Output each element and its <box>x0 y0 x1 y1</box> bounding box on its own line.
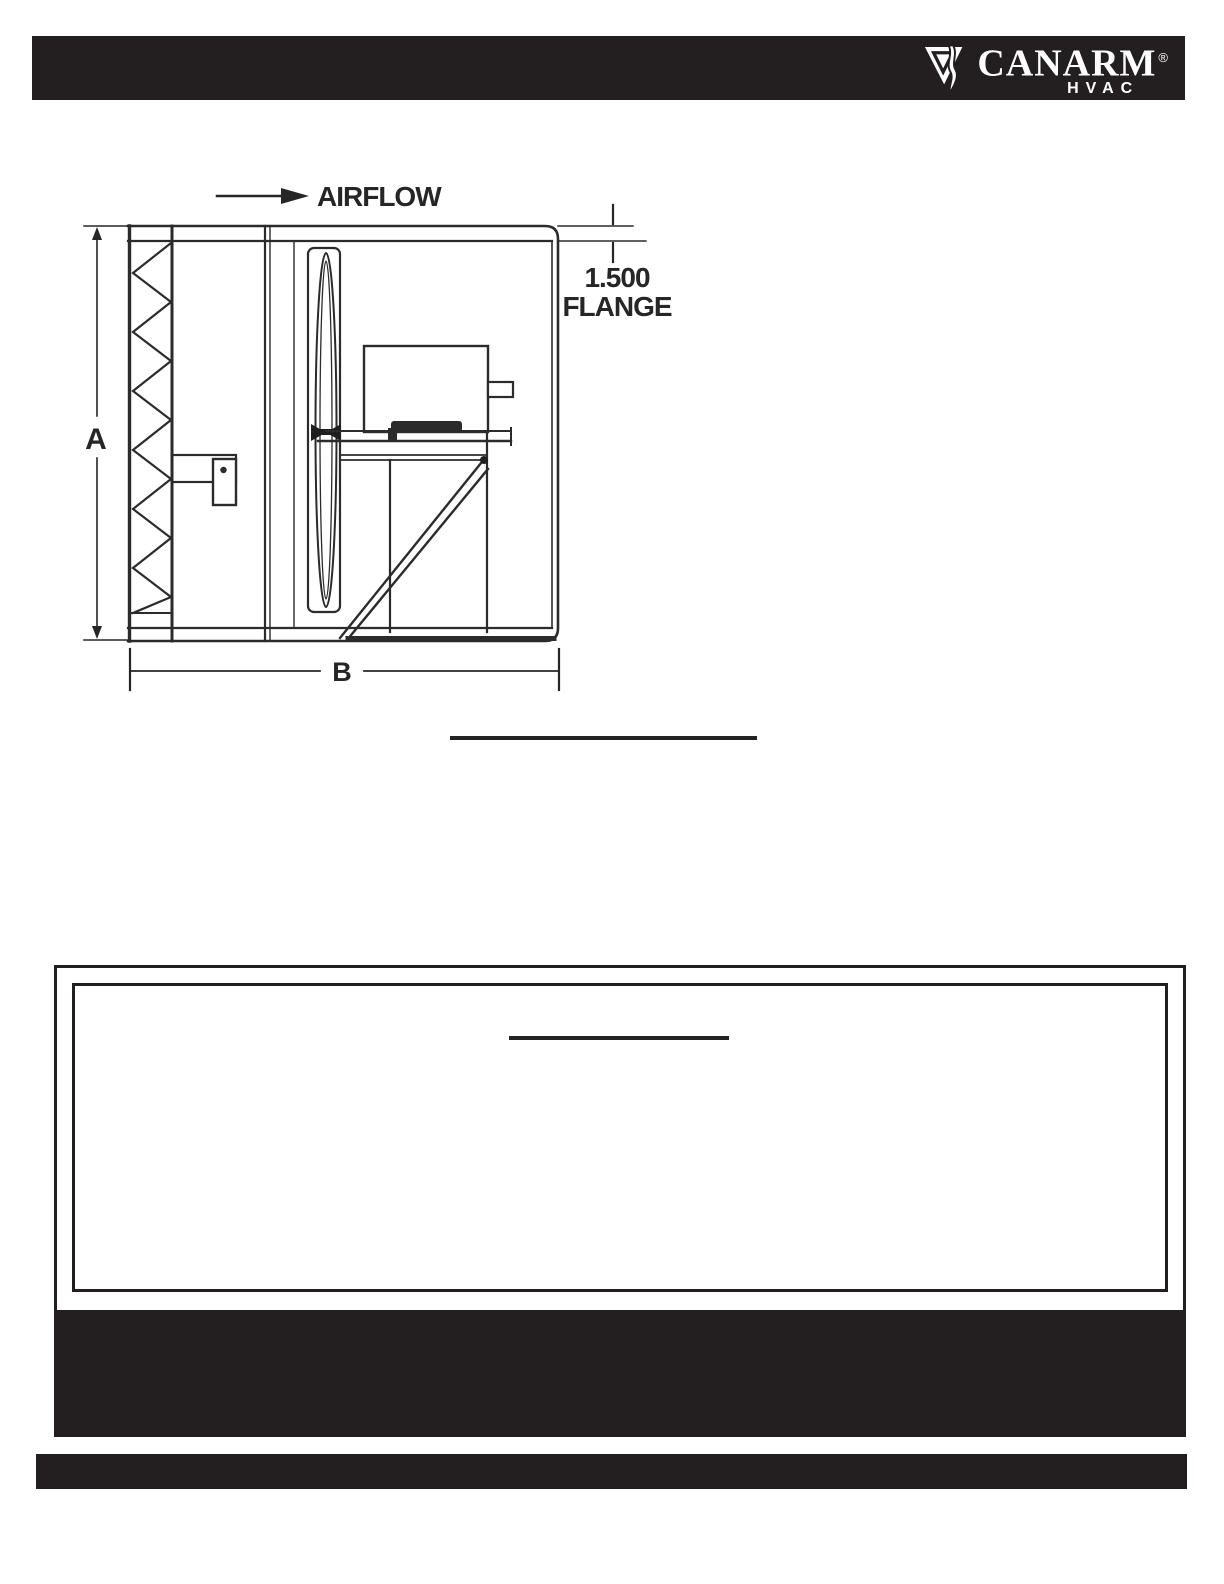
header-bar: CANARM® HVAC <box>32 36 1185 100</box>
fan-side-view-diagram: AIRFLOW <box>60 158 700 723</box>
info-box-heading-underline <box>509 1036 729 1040</box>
canarm-logo: CANARM® HVAC <box>923 40 1169 98</box>
page-footer-bar <box>36 1454 1187 1489</box>
dimension-a-label: A <box>85 423 107 456</box>
airflow-arrow-icon <box>217 188 309 204</box>
support-brace <box>340 432 488 640</box>
registered-mark: ® <box>1158 50 1169 65</box>
motor-assembly <box>318 346 513 460</box>
logo-text: CANARM® HVAC <box>977 40 1169 98</box>
shutter-section <box>130 226 172 641</box>
info-box-footer-bar <box>54 1310 1186 1437</box>
airflow-label: AIRFLOW <box>317 181 442 212</box>
flange-value: 1.500 <box>584 262 649 293</box>
info-box-inner <box>72 983 1168 1292</box>
title-underline <box>450 736 757 740</box>
flange-label: FLANGE <box>562 291 671 322</box>
spec-sheet-page: CANARM® HVAC AIRFLOW <box>0 0 1224 1584</box>
brand-name: CANARM® <box>977 40 1169 82</box>
canarm-triangle-logo-icon <box>923 44 971 101</box>
shutter-latch <box>172 455 236 505</box>
dimension-b-label: B <box>332 657 352 687</box>
division-label: HVAC <box>1067 80 1139 98</box>
brand-word: CANARM <box>977 43 1156 85</box>
interior-panels <box>265 226 294 641</box>
